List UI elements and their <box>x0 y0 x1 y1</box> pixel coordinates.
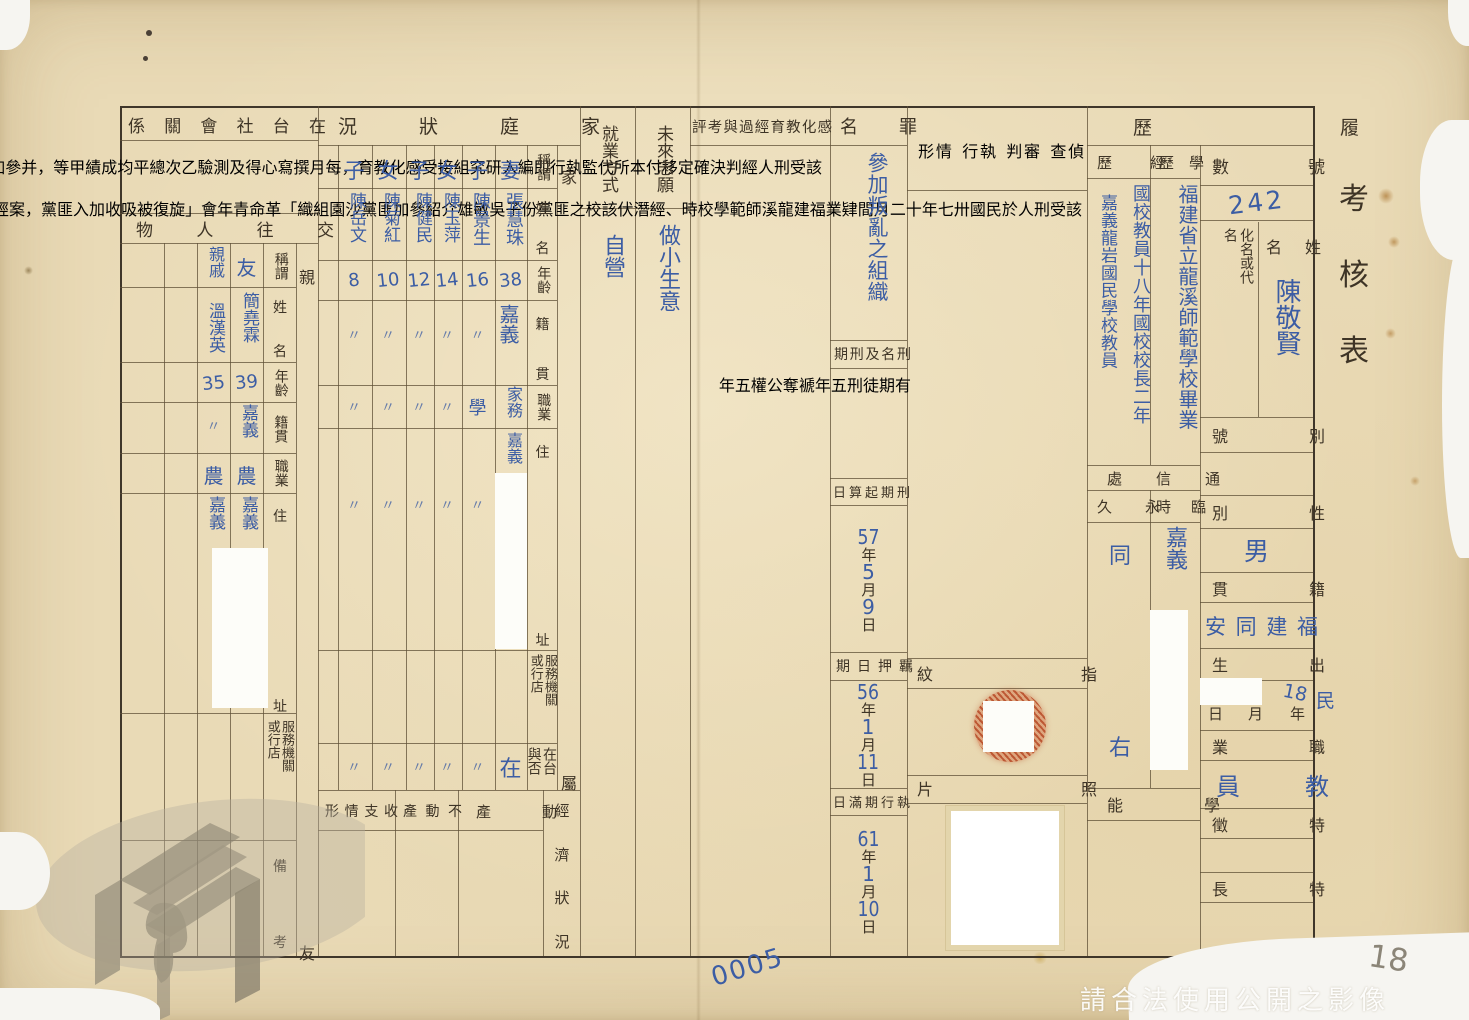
member-in-taiwan: 〃 <box>371 750 405 784</box>
completion-label: 執行期滿日 <box>830 790 913 813</box>
member-origin: 〃 <box>337 320 371 350</box>
date-month: 5 <box>856 562 881 582</box>
date-month-unit: 月 <box>859 884 878 899</box>
number-label: 號數 <box>1200 148 1337 182</box>
sentence-label: 刑名及刑期 <box>830 342 915 366</box>
grid-line <box>1087 178 1200 179</box>
torn-edge <box>1448 0 1469 46</box>
date-year: 61 <box>856 829 881 849</box>
grid-line <box>120 402 296 403</box>
family-group-label: 家屬 <box>559 150 579 808</box>
contact-relation: 友 <box>230 246 263 286</box>
whiteout-patch <box>983 701 1034 752</box>
investigation-text: 該受刑人於民國卅七年十二月間肄業福建龍溪師範學校 時、經潛伏該校之匪黨份子吳敏雄… <box>910 196 1082 656</box>
grid-line <box>1200 572 1313 573</box>
date-year: 56 <box>856 682 880 702</box>
contact-origin: 〃 <box>197 412 230 440</box>
date-year-unit: 年 <box>859 702 877 717</box>
torn-edge <box>1442 238 1469 558</box>
stain <box>1410 476 1420 486</box>
permanent-value: 同右 <box>1100 538 1140 762</box>
aspiration-value: 做小生意 <box>644 224 684 364</box>
social-row-label-age: 年齡 <box>267 366 293 400</box>
date-day: 10 <box>856 899 881 919</box>
member-name: 陳景生 <box>465 192 491 258</box>
grid-line <box>830 505 907 506</box>
aspiration-label: 未來志願 <box>637 112 688 206</box>
member-relation: 子 <box>461 152 494 188</box>
sentence-start-date: 57年5月9日 <box>846 508 890 650</box>
sentence-start-label: 刑期起算日 <box>830 480 913 503</box>
specialty-label: 特長 <box>1200 874 1337 901</box>
grid-line <box>690 106 691 956</box>
alias-label: 化名或代名 <box>1206 228 1254 284</box>
member-relation: 女 <box>433 152 461 188</box>
date-year: 57 <box>856 527 881 547</box>
occupation-label: 職業 <box>1200 732 1337 759</box>
social-row-label-workplace: 服務機關或行店 <box>268 720 293 782</box>
contact-label: 通信處 <box>1087 466 1240 490</box>
grid-line <box>1200 872 1313 873</box>
experience-value-1: 國校教員十八年國校校長二年 <box>1116 184 1150 460</box>
family-row-label-in-taiwan: 在台與否 <box>531 747 556 781</box>
date-day: 9 <box>856 597 881 617</box>
grid-line <box>907 688 1087 689</box>
resume-section-label: 履歷 <box>1087 109 1405 143</box>
name-value: 陳敬賢 <box>1266 278 1308 418</box>
social-row-label-occupation: 職業 <box>267 456 293 490</box>
date-day-unit: 日 <box>859 617 878 632</box>
contact-occupation: 農 <box>230 456 263 492</box>
grid-line <box>318 145 580 146</box>
date-day-unit: 日 <box>859 919 878 934</box>
member-occupation: 家務 <box>499 386 523 428</box>
form-title: 考核表 <box>1330 172 1378 372</box>
member-relation: 女 <box>371 152 405 188</box>
contact-age: 35 <box>196 366 232 399</box>
grid-line <box>527 145 528 790</box>
grid-line <box>1200 902 1313 903</box>
completion-date: 61年1月10日 <box>846 816 890 946</box>
grid-line <box>120 243 318 244</box>
employment-value: 自營 <box>594 234 630 320</box>
detention-date: 56年1月11日 <box>846 682 890 786</box>
grid-line <box>1200 495 1313 496</box>
family-row-label-age: 年齡 <box>529 262 556 298</box>
grid-line <box>1087 820 1200 821</box>
member-occupation: 〃 <box>405 392 433 422</box>
assessment-form-page: 考核表 <box>0 0 1469 1020</box>
member-address: 〃 <box>433 490 461 520</box>
grid-line <box>1200 730 1313 731</box>
member-age: 38 <box>492 260 529 299</box>
grid-line <box>690 145 830 146</box>
stain <box>1378 188 1394 204</box>
date-month-unit: 月 <box>859 737 877 752</box>
whiteout-patch <box>212 548 268 708</box>
whiteout-patch <box>1150 610 1188 770</box>
grid-line <box>120 453 296 454</box>
member-origin: 嘉義 <box>497 304 525 384</box>
grid-line <box>1087 490 1200 491</box>
grid-line <box>318 743 557 744</box>
grid-line <box>1200 528 1313 529</box>
family-row-label-workplace: 服務機關或行店 <box>531 654 556 716</box>
grid-line <box>406 145 407 790</box>
member-origin: 〃 <box>371 320 405 350</box>
grid-line <box>1200 602 1313 603</box>
member-age: 14 <box>431 261 463 300</box>
member-relation: 子 <box>337 152 371 188</box>
grid-line <box>1200 648 1313 649</box>
grid-line <box>1200 452 1313 453</box>
grid-line <box>372 145 373 790</box>
grid-line <box>907 658 1087 659</box>
byname-label: 別號 <box>1200 420 1337 450</box>
date-month: 1 <box>856 717 880 737</box>
grid-line <box>1087 522 1200 523</box>
member-origin: 〃 <box>461 320 494 350</box>
library-logo-watermark <box>25 785 365 1020</box>
date-day: 11 <box>856 752 880 772</box>
member-name: 陳玉萍 <box>436 192 460 258</box>
name-label: 姓名 <box>1258 235 1329 257</box>
fingerprint-label: 指紋 <box>907 660 1107 686</box>
stain <box>1385 328 1396 339</box>
member-name: 張慧珠 <box>498 192 524 258</box>
grid-line <box>830 652 907 653</box>
origin-value: 福建同安 <box>1200 606 1323 646</box>
temporary-label: 臨時 <box>1150 493 1212 520</box>
contact-occupation: 農 <box>197 456 230 492</box>
origin-label: 籍貫 <box>1200 574 1337 601</box>
grid-line <box>635 106 636 956</box>
member-origin: 〃 <box>433 320 461 350</box>
grid-line <box>907 803 1087 804</box>
grid-line <box>1200 760 1313 761</box>
family-row-label-name: 姓名 <box>529 194 556 262</box>
family-row-label-occupation: 職業 <box>529 388 556 426</box>
member-occupation: 〃 <box>337 392 371 422</box>
grid-line <box>462 145 463 790</box>
temporary-value: 嘉義 <box>1158 526 1192 610</box>
member-name: 陳健民 <box>408 192 432 258</box>
member-in-taiwan: 〃 <box>405 750 433 784</box>
birth-day-unit: 日 <box>1208 703 1223 724</box>
stain <box>1388 236 1400 248</box>
education-value: 福建省立龍溪師範學校畢業 <box>1158 184 1198 476</box>
torn-edge <box>0 0 30 50</box>
photo-label: 照片 <box>907 776 1107 800</box>
member-occupation: 〃 <box>433 392 461 422</box>
detention-label: 羈押日期 <box>830 654 919 677</box>
social-header: 在台社會關係 <box>120 109 334 139</box>
member-occupation: 學 <box>461 388 494 426</box>
grid-line <box>1087 106 1088 956</box>
copyright-watermark: 請合法使用公開之影像 <box>1080 980 1469 1016</box>
member-occupation: 〃 <box>371 392 405 422</box>
date-year-unit: 年 <box>859 849 878 864</box>
date-day-unit: 日 <box>859 772 877 787</box>
sex-label: 性別 <box>1200 498 1337 526</box>
reform-header: 感化教育經過與考評 <box>690 111 834 141</box>
crime-label: 罪名 <box>830 109 927 143</box>
birth-year-unit: 年 <box>1290 703 1305 724</box>
sentence-value: 有期徒刑五年 褫奪公權五年 <box>832 372 917 474</box>
family-header: 家庭狀況 <box>318 109 620 141</box>
grid-line <box>1200 838 1313 839</box>
member-age: 12 <box>403 261 435 300</box>
grid-line <box>907 190 1087 191</box>
grid-line <box>580 106 581 956</box>
grid-line <box>1087 145 1313 146</box>
member-address: 嘉義 <box>499 432 523 474</box>
member-relation: 妻 <box>494 152 527 188</box>
member-in-taiwan: 在 <box>494 746 527 788</box>
member-address: 〃 <box>337 490 371 520</box>
member-relation: 子 <box>405 152 433 188</box>
family-row-label-address: 住址 <box>529 436 556 656</box>
photo-placeholder <box>946 806 1064 950</box>
contact-relation: 親戚 <box>201 246 226 304</box>
member-in-taiwan: 〃 <box>461 750 494 784</box>
sex-value: 男 <box>1200 530 1313 570</box>
grid-line <box>495 145 496 790</box>
grid-line <box>830 106 831 956</box>
member-address: 〃 <box>405 490 433 520</box>
social-sub-header: 交往人物 <box>120 215 350 242</box>
grid-line <box>318 300 557 301</box>
whiteout-patch <box>1200 678 1262 705</box>
grid-line <box>830 478 907 479</box>
experience-label: 經歷 <box>1087 148 1175 176</box>
stain <box>24 266 33 275</box>
member-origin: 〃 <box>405 320 433 350</box>
member-name: 陳菊紅 <box>376 192 400 258</box>
date-month-unit: 月 <box>859 582 878 597</box>
grid-line <box>830 368 907 369</box>
date-year-unit: 年 <box>859 547 878 562</box>
birth-month-unit: 月 <box>1248 703 1263 724</box>
stain <box>146 30 152 36</box>
family-row-label-origin: 籍貫 <box>529 308 556 390</box>
member-address: 〃 <box>461 490 494 520</box>
whiteout-patch <box>495 473 527 649</box>
grid-line <box>318 428 557 429</box>
contact-age: 39 <box>228 364 264 399</box>
member-in-taiwan: 〃 <box>433 750 461 784</box>
social-row-label-address: 住址 <box>267 498 293 724</box>
member-age: 10 <box>369 260 407 299</box>
reform-text: 該受刑人經判決確定移付本所代監執行即編入研究組接受感化教育，每月撰寫 心得及測驗… <box>698 154 822 929</box>
grid-line <box>557 145 558 790</box>
member-in-taiwan: 〃 <box>337 750 371 784</box>
member-age: 16 <box>459 260 496 299</box>
grid-line <box>830 788 907 789</box>
economy-col-movable: 動產 <box>460 792 573 830</box>
experience-value-2: 嘉義龍岩國民學校教員 <box>1089 194 1117 426</box>
contact-address: 嘉義 <box>201 496 226 548</box>
contact-name: 簡堯霖 <box>234 292 259 360</box>
contact-address: 嘉義 <box>234 496 259 548</box>
crime-value: 參加叛亂之組織 <box>846 152 890 344</box>
member-address: 〃 <box>371 490 405 520</box>
grid-line <box>318 188 557 189</box>
economy-col-immovable: 不動產 <box>397 792 468 830</box>
stain <box>143 56 148 61</box>
social-row-label-relation: 稱謂 <box>267 248 293 284</box>
date-month: 1 <box>856 864 881 884</box>
grid-line <box>830 145 907 146</box>
family-row-label-relation: 稱謂 <box>529 148 556 186</box>
grid-line <box>434 145 435 790</box>
grid-line <box>318 650 557 651</box>
birth-year-value: 18 <box>1281 680 1309 707</box>
investigation-header: 偵查 審判 執行 情形 <box>907 112 1099 188</box>
member-age: 8 <box>335 260 373 299</box>
birth-era: 民 <box>1316 686 1335 713</box>
contact-origin: 嘉義 <box>234 404 259 452</box>
birth-label: 出生 <box>1200 650 1337 678</box>
grid-line <box>120 493 296 494</box>
grid-line <box>907 106 908 956</box>
grid-line <box>120 140 318 141</box>
social-row-label-name: 姓名 <box>267 292 293 366</box>
social-row-label-origin: 籍貫 <box>267 408 293 450</box>
ability-label: 學能 <box>1087 790 1240 818</box>
